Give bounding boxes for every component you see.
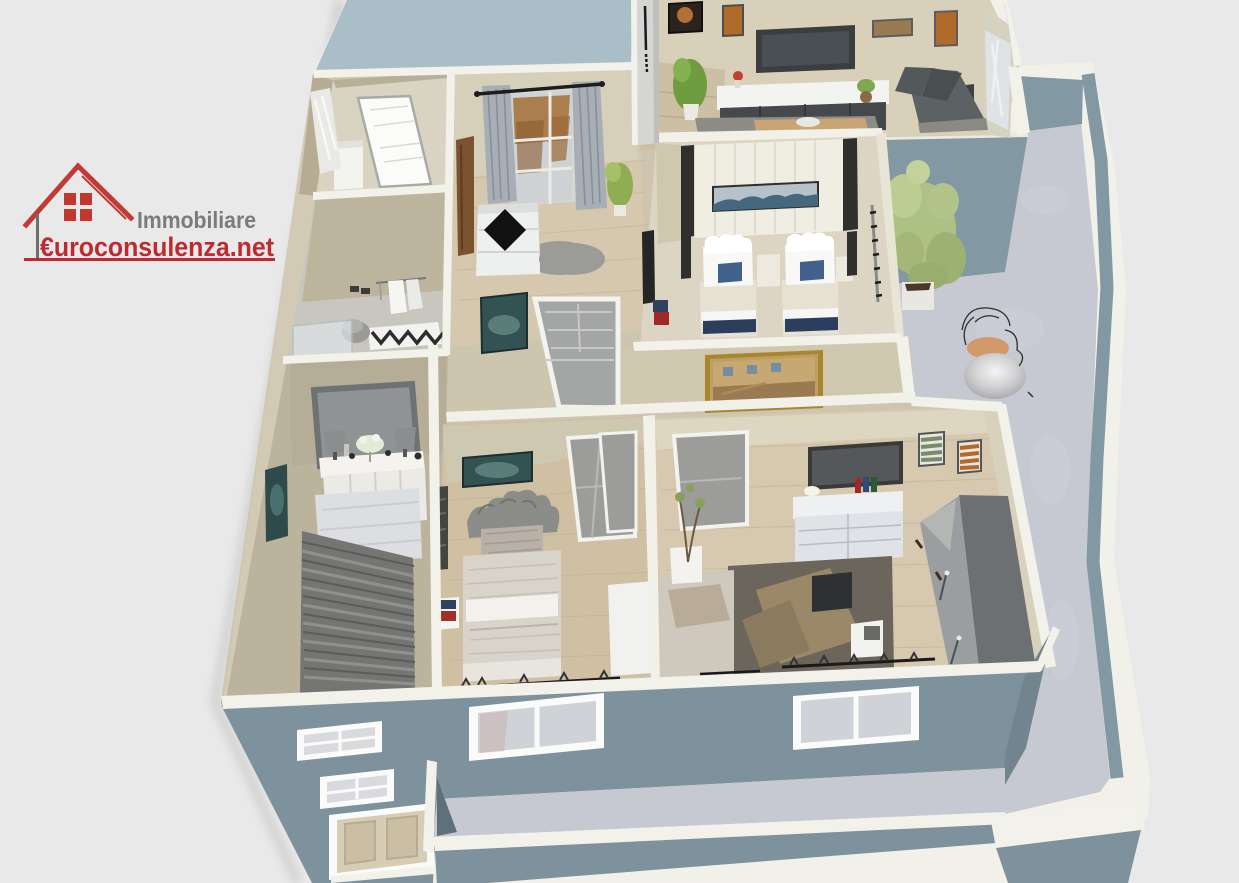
svg-text:Immobiliare: Immobiliare: [137, 207, 256, 233]
svg-text:€uroconsulenza.net: €uroconsulenza.net: [40, 232, 274, 262]
